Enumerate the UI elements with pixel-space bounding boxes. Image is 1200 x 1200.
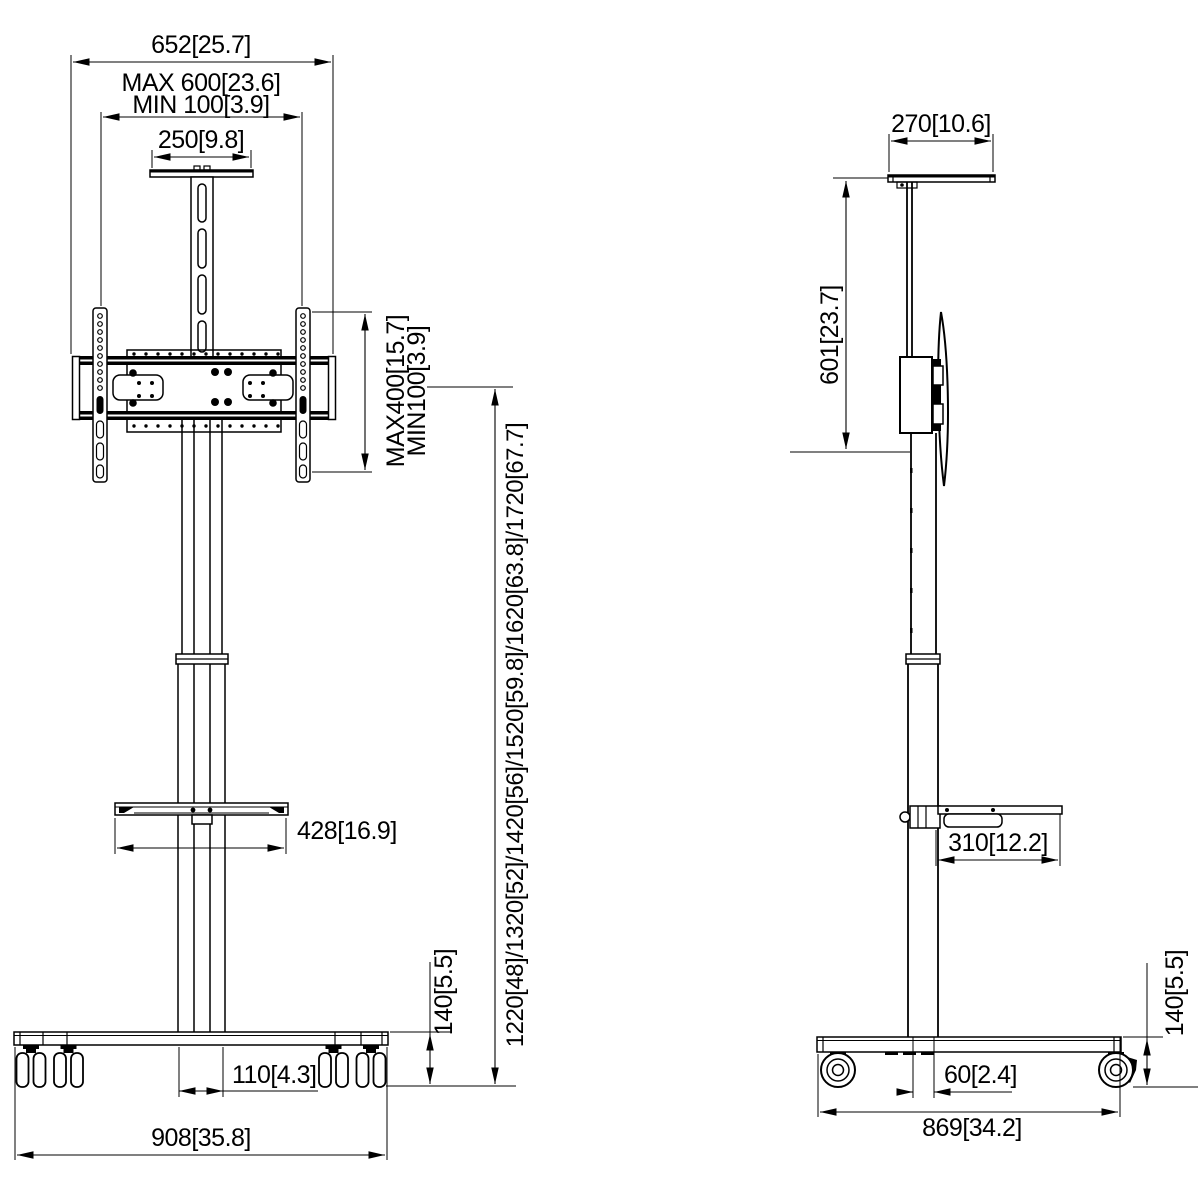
front-slotted-bar: [191, 177, 213, 357]
dim-label-base-depth: 869[34.2]: [922, 1114, 1022, 1142]
dim-label-screen-center-heights: 1220[48]/1320[52]/1420[56]/1520[59.8]/16…: [502, 423, 529, 1047]
dim-label-top-to-mount-drop: 601[23.7]: [816, 285, 844, 385]
dim-label-camera-plate-width: 250[9.8]: [158, 126, 244, 154]
front-vesa-rail-left: [93, 308, 107, 482]
dim-label-front-base-height: 140[5.5]: [430, 949, 458, 1035]
mount-bracket-box: [900, 357, 932, 433]
wheel: [821, 1052, 855, 1087]
dim-label-shelf-width: 428[16.9]: [297, 817, 397, 845]
dim-label-top-shelf-depth: 270[10.6]: [891, 110, 991, 138]
background: [0, 0, 1200, 1200]
front-base: [14, 1032, 388, 1045]
dim-label-total-width: 652[25.7]: [151, 31, 251, 59]
dim-label-vesa-height-min: MIN100[3.9]: [403, 326, 431, 457]
dim-label-shelf-depth: 310[12.2]: [948, 829, 1048, 857]
dim-label-column-offset: 60[2.4]: [944, 1061, 1017, 1089]
shelf-clamp-knob: [900, 812, 910, 822]
technical-drawing: 652[25.7] MAX 600[23.6] MIN 100[3.9] 250…: [0, 0, 1200, 1200]
dim-label-base-width: 908[35.8]: [151, 1124, 251, 1152]
dim-label-vesa-width-min: MIN 100[3.9]: [132, 91, 269, 119]
dim-label-column-width: 110[4.3]: [232, 1061, 317, 1089]
front-vesa-rail-right: [296, 308, 310, 482]
drawing-page: 652[25.7] MAX 600[23.6] MIN 100[3.9] 250…: [0, 0, 1200, 1200]
dim-label-side-base-height: 140[5.5]: [1161, 950, 1189, 1036]
side-base: [817, 1037, 1121, 1055]
